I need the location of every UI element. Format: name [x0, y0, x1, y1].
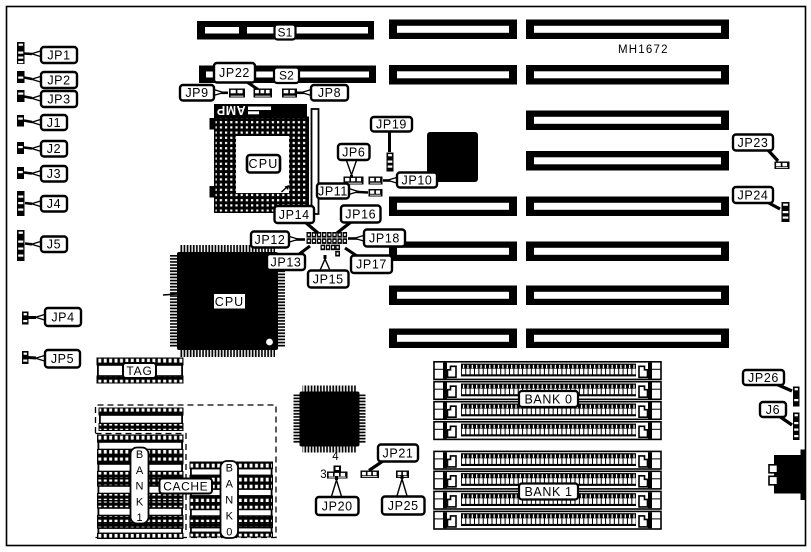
svg-text:JP23: JP23 [738, 136, 769, 150]
svg-text:N: N [225, 495, 233, 507]
svg-text:3: 3 [320, 469, 326, 481]
svg-text:JP21: JP21 [383, 446, 414, 460]
svg-text:JP5: JP5 [51, 352, 74, 366]
svg-text:CPU: CPU [215, 295, 244, 309]
svg-text:BANK 0: BANK 0 [524, 392, 572, 406]
svg-text:A: A [136, 465, 144, 477]
svg-text:JP16: JP16 [345, 207, 376, 221]
svg-text:N: N [136, 481, 144, 493]
svg-text:JP3: JP3 [47, 92, 70, 106]
svg-text:MH1672: MH1672 [618, 44, 669, 56]
svg-text:JP4: JP4 [51, 310, 74, 324]
svg-text:JP12: JP12 [255, 233, 286, 247]
svg-text:JP9: JP9 [185, 86, 208, 100]
svg-text:4: 4 [332, 451, 339, 463]
svg-text:S2: S2 [279, 69, 294, 83]
svg-text:J6: J6 [766, 403, 780, 417]
svg-text:J2: J2 [47, 142, 61, 156]
svg-text:JP26: JP26 [748, 371, 779, 385]
svg-text:S1: S1 [277, 25, 292, 39]
svg-text:JP6: JP6 [342, 145, 365, 159]
svg-text:JP24: JP24 [738, 188, 769, 202]
svg-text:AMP: AMP [216, 103, 245, 117]
svg-text:JP1: JP1 [47, 48, 70, 62]
svg-text:J1: J1 [47, 116, 61, 130]
svg-text:CACHE: CACHE [163, 479, 208, 493]
svg-text:JP11: JP11 [318, 184, 348, 198]
svg-text:J5: J5 [47, 238, 61, 252]
svg-text:K: K [136, 496, 144, 508]
svg-text:J3: J3 [47, 167, 61, 181]
svg-text:B: B [136, 449, 143, 461]
svg-text:JP17: JP17 [356, 258, 387, 272]
svg-text:JP25: JP25 [388, 499, 419, 513]
svg-text:1: 1 [136, 512, 142, 524]
svg-text:JP13: JP13 [271, 255, 302, 269]
svg-text:TAG: TAG [126, 364, 152, 378]
svg-text:J4: J4 [47, 197, 61, 211]
svg-text:JP14: JP14 [279, 208, 310, 222]
svg-text:BANK 1: BANK 1 [524, 485, 572, 499]
svg-text:JP10: JP10 [402, 173, 433, 187]
svg-text:A: A [226, 479, 234, 491]
svg-text:JP19: JP19 [376, 118, 407, 132]
svg-text:0: 0 [226, 527, 232, 539]
svg-text:JP22: JP22 [219, 66, 250, 80]
svg-text:JP2: JP2 [47, 73, 70, 87]
svg-text:JP15: JP15 [313, 272, 344, 286]
svg-text:JP18: JP18 [369, 231, 400, 245]
svg-text:JP20: JP20 [322, 499, 353, 513]
svg-text:K: K [226, 511, 234, 523]
svg-text:CPU: CPU [249, 157, 279, 171]
svg-text:JP8: JP8 [318, 86, 341, 100]
svg-text:B: B [226, 463, 233, 475]
